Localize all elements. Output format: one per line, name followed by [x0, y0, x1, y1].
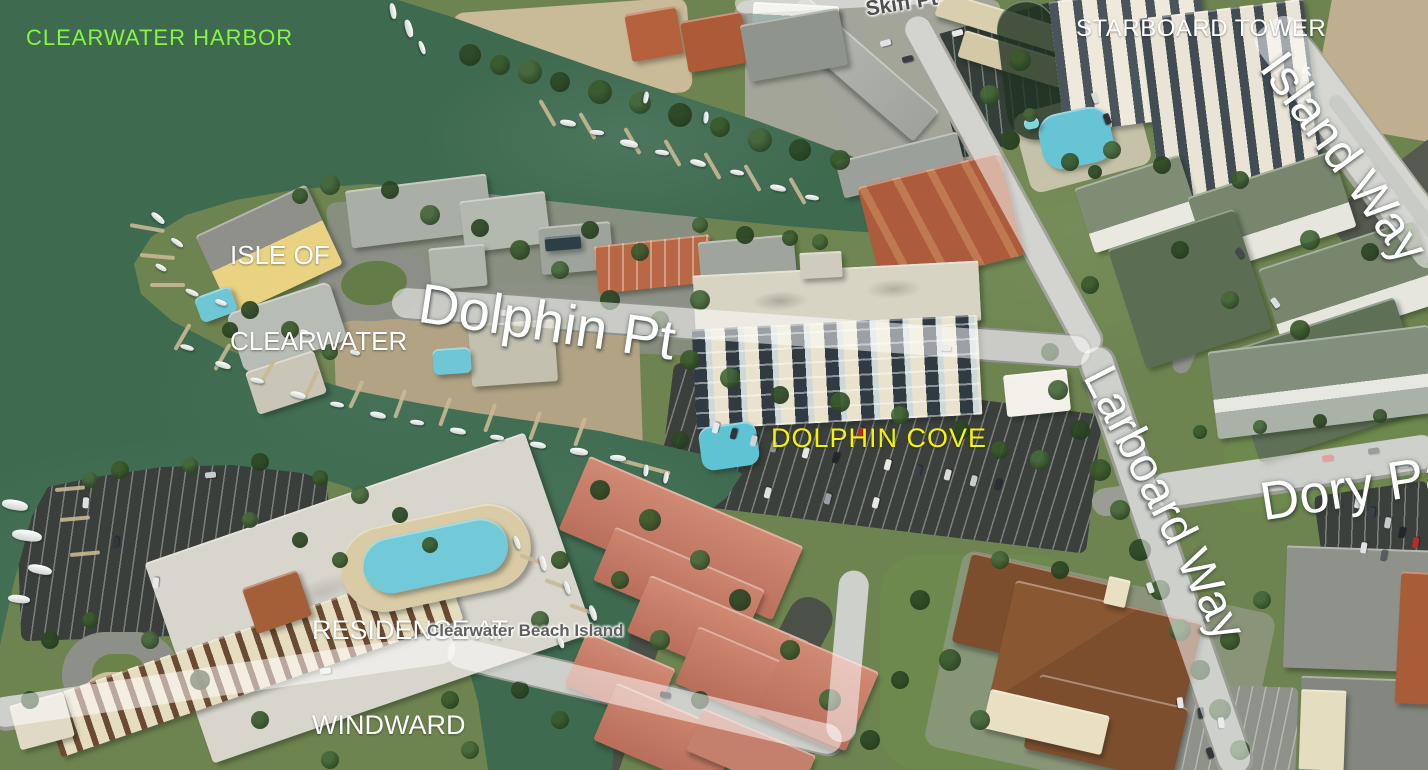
- dock: [743, 164, 761, 192]
- tree: [1193, 425, 1207, 439]
- boat: [150, 211, 166, 226]
- tree: [351, 486, 369, 504]
- tree: [991, 551, 1009, 569]
- tree: [720, 368, 740, 388]
- aerial-imagery-layer: ➜➜: [0, 0, 1428, 770]
- car: [152, 577, 158, 588]
- aerial-map-viewport[interactable]: ➜➜ CLEARWATER HARBOR Skiff Pt STARBOARD …: [0, 0, 1428, 770]
- tree: [1089, 459, 1111, 481]
- tree: [292, 532, 308, 548]
- boat: [403, 19, 414, 38]
- tree: [690, 290, 710, 310]
- tree: [1070, 420, 1090, 440]
- tree: [550, 72, 570, 92]
- boat: [180, 343, 195, 352]
- dock: [788, 177, 806, 205]
- tree: [41, 631, 59, 649]
- tree: [1171, 241, 1189, 259]
- tree: [1253, 591, 1271, 609]
- tree: [1231, 171, 1249, 189]
- tree: [748, 128, 772, 152]
- tree: [82, 472, 98, 488]
- boat: [570, 447, 589, 456]
- tree: [471, 219, 489, 237]
- label-residence-at-windward-passage: RESIDENCE AT WINDWARD PASSAGE: [312, 552, 508, 770]
- tree: [312, 470, 328, 486]
- tree: [551, 551, 569, 569]
- tree: [1373, 409, 1387, 423]
- tree: [459, 44, 481, 66]
- tree: [1110, 500, 1130, 520]
- tree: [1081, 276, 1099, 294]
- tree: [1088, 165, 1102, 179]
- label-clearwater-beach-island: Clearwater Beach Island: [427, 622, 624, 641]
- tree: [1048, 380, 1068, 400]
- tree: [590, 480, 610, 500]
- label-isle-of-clearwater: ISLE OF CLEARWATER: [230, 184, 407, 413]
- tree: [82, 612, 98, 628]
- building: [1299, 689, 1347, 770]
- tree: [668, 103, 692, 127]
- boat: [805, 194, 820, 201]
- boat: [410, 419, 425, 426]
- boat: [770, 183, 787, 192]
- tree: [690, 550, 710, 570]
- tree: [422, 537, 438, 553]
- tree: [671, 431, 689, 449]
- car: [112, 537, 118, 548]
- tree: [1030, 450, 1050, 470]
- building: [680, 11, 750, 73]
- tree: [1313, 414, 1327, 428]
- tree: [581, 221, 599, 239]
- tree: [518, 60, 542, 84]
- boat: [610, 454, 627, 462]
- tree: [771, 386, 789, 404]
- dock: [150, 283, 185, 287]
- tree: [970, 710, 990, 730]
- boat: [703, 111, 709, 123]
- tree: [1103, 141, 1121, 159]
- tree: [111, 461, 129, 479]
- tree: [1023, 108, 1037, 122]
- label-residence-line2: WINDWARD: [312, 710, 508, 742]
- tree: [729, 589, 751, 611]
- building: [799, 251, 842, 279]
- tree: [692, 217, 708, 233]
- tree: [242, 512, 258, 528]
- boat: [530, 441, 547, 450]
- tree: [251, 711, 269, 729]
- tree: [891, 406, 909, 424]
- tree: [1000, 130, 1020, 150]
- tree: [1253, 420, 1267, 434]
- tree: [812, 234, 828, 250]
- boat: [730, 169, 745, 177]
- tree: [420, 205, 440, 225]
- tree: [1221, 291, 1239, 309]
- boat: [417, 40, 427, 55]
- tree: [830, 392, 850, 412]
- label-isle-of-clearwater-line1: ISLE OF: [230, 241, 407, 270]
- tree: [182, 457, 198, 473]
- tree: [680, 350, 700, 370]
- label-isle-of-clearwater-line2: CLEARWATER: [230, 327, 407, 356]
- label-starboard-tower: STARBOARD TOWER: [1076, 16, 1326, 42]
- tree: [1153, 156, 1171, 174]
- tree: [1051, 561, 1069, 579]
- dock: [538, 99, 556, 127]
- boat: [643, 464, 649, 476]
- dock: [703, 152, 721, 180]
- boat: [655, 149, 670, 156]
- boat: [490, 434, 505, 441]
- car: [205, 472, 216, 478]
- tree: [1009, 49, 1031, 71]
- boat: [389, 3, 398, 20]
- boat: [450, 427, 467, 436]
- tree: [631, 243, 649, 261]
- tree: [1290, 320, 1310, 340]
- tree: [588, 80, 612, 104]
- tree: [736, 226, 754, 244]
- tree: [860, 730, 880, 750]
- tree: [551, 261, 569, 279]
- tree: [789, 139, 811, 161]
- tree: [392, 507, 408, 523]
- dock: [578, 112, 596, 140]
- tree: [490, 55, 510, 75]
- car: [82, 497, 88, 508]
- tree: [510, 240, 530, 260]
- tree: [251, 453, 269, 471]
- dock: [130, 223, 165, 233]
- tree: [1061, 153, 1079, 171]
- building: [1395, 571, 1428, 705]
- label-clearwater-harbor: CLEARWATER HARBOR: [26, 26, 293, 50]
- tree: [650, 630, 670, 650]
- boat: [689, 158, 706, 168]
- boat: [1, 498, 28, 512]
- tree: [939, 649, 961, 671]
- tree: [1300, 230, 1320, 250]
- tree: [780, 640, 800, 660]
- boat: [662, 471, 669, 484]
- tree: [830, 150, 850, 170]
- tree: [782, 230, 798, 246]
- building: [432, 347, 472, 376]
- building: [624, 6, 684, 62]
- tree: [710, 117, 730, 137]
- tree: [891, 671, 909, 689]
- tree: [551, 711, 569, 729]
- tree: [980, 85, 1000, 105]
- tree: [910, 590, 930, 610]
- tree: [991, 441, 1009, 459]
- boat: [560, 119, 577, 128]
- boat: [619, 138, 638, 148]
- tree: [611, 571, 629, 589]
- label-dolphin-cove: DOLPHIN COVE: [771, 424, 987, 454]
- tree: [141, 631, 159, 649]
- tree: [639, 509, 661, 531]
